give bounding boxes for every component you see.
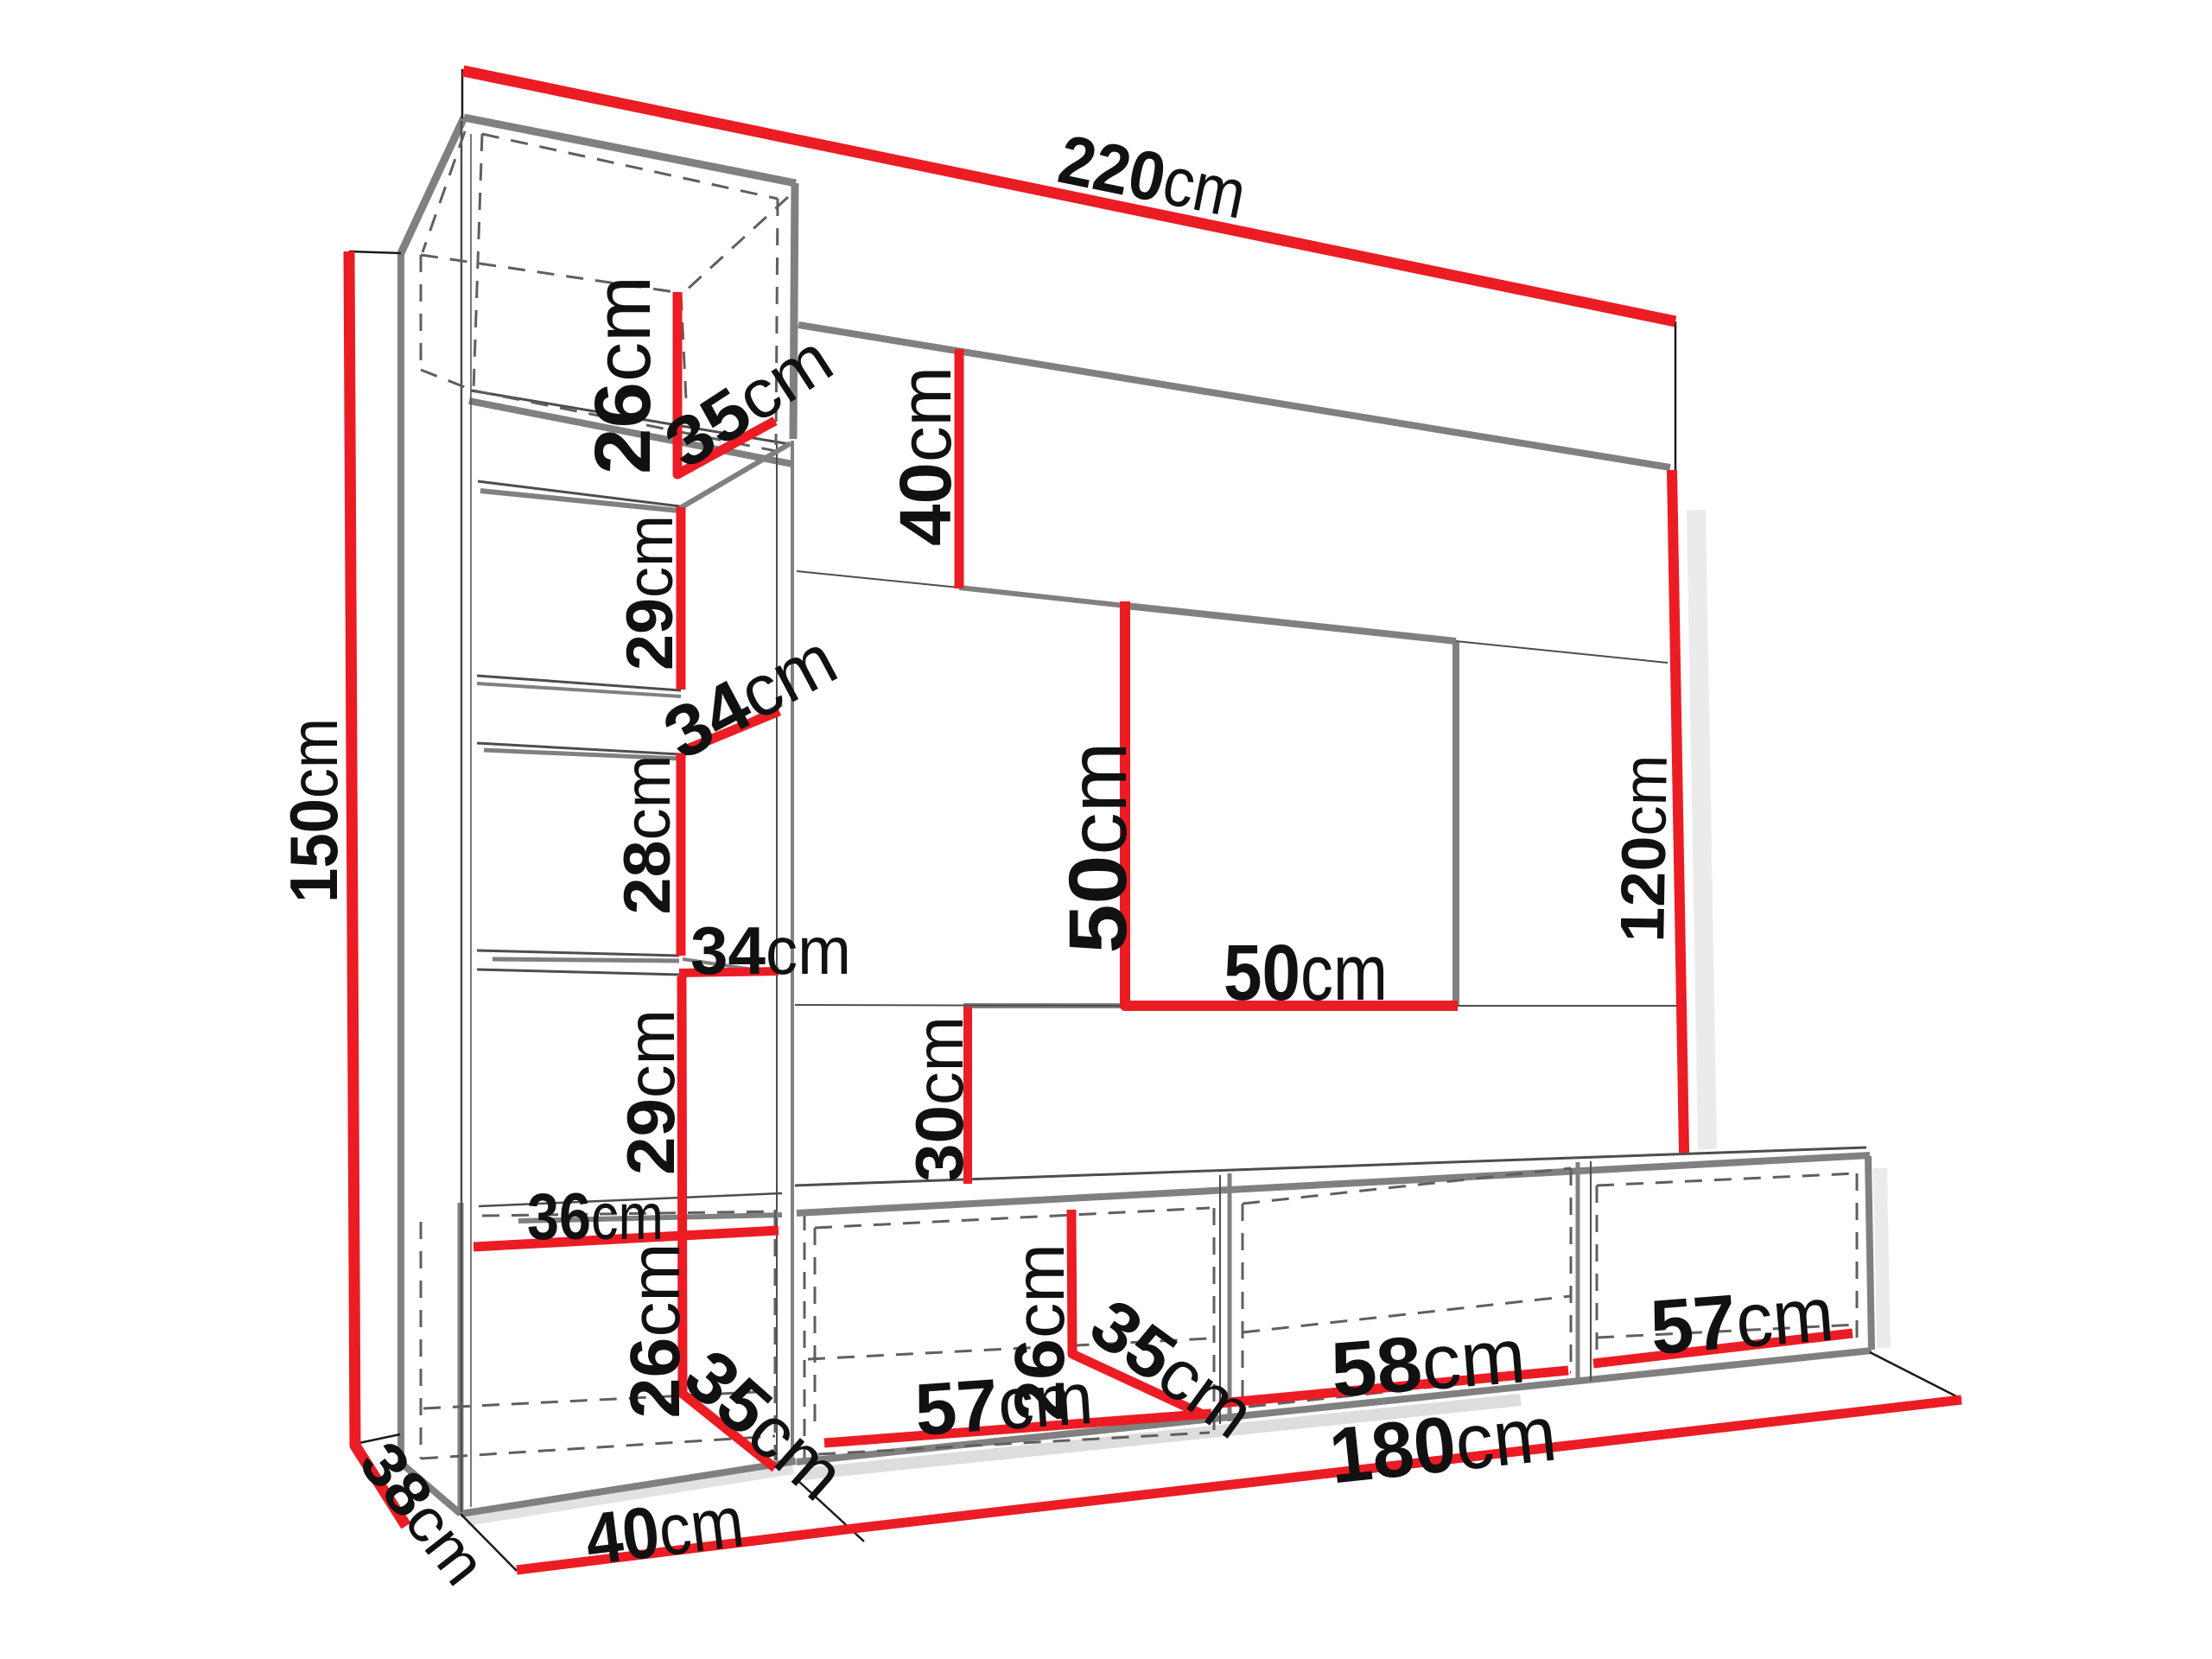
svg-text:120cm: 120cm	[1608, 754, 1681, 943]
svg-text:30cm: 30cm	[901, 1016, 977, 1182]
svg-text:36cm: 36cm	[527, 1180, 664, 1254]
svg-text:26cm: 26cm	[579, 276, 667, 474]
svg-text:40cm: 40cm	[885, 366, 966, 546]
svg-text:57cm: 57cm	[1647, 1270, 1836, 1370]
svg-text:34cm: 34cm	[690, 912, 851, 988]
svg-text:29cm: 29cm	[613, 515, 687, 671]
svg-text:28cm: 28cm	[611, 755, 684, 915]
svg-text:150cm: 150cm	[276, 718, 352, 903]
svg-text:50cm: 50cm	[1052, 742, 1144, 954]
svg-text:29cm: 29cm	[613, 1009, 689, 1175]
svg-text:57cm: 57cm	[912, 1357, 1096, 1451]
svg-text:50cm: 50cm	[1224, 929, 1388, 1017]
